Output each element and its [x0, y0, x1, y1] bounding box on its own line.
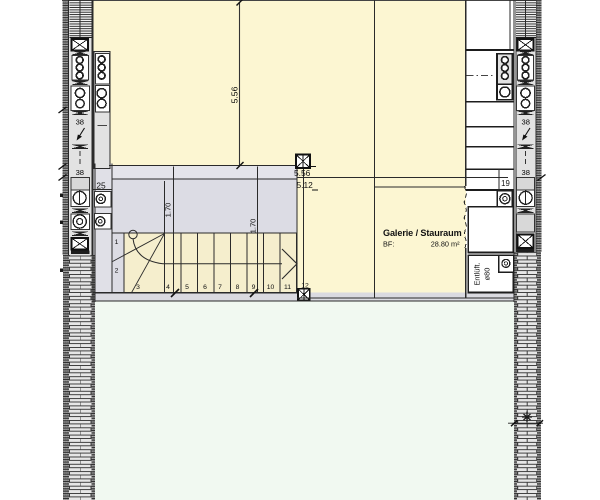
svg-text:38: 38 [521, 117, 529, 126]
svg-text:10: 10 [267, 284, 275, 291]
svg-text:1.70: 1.70 [249, 219, 258, 234]
svg-text:12: 12 [301, 283, 309, 290]
svg-text:8: 8 [236, 284, 240, 291]
svg-text:7: 7 [218, 284, 222, 291]
svg-text:28.80 m²: 28.80 m² [431, 240, 460, 249]
svg-text:BF:: BF: [383, 240, 394, 249]
svg-text:Galerie / Stauraum: Galerie / Stauraum [383, 228, 462, 238]
svg-text:Entlüft.: Entlüft. [473, 262, 482, 285]
svg-text:38: 38 [76, 117, 84, 126]
svg-text:38: 38 [521, 168, 529, 177]
svg-text:9: 9 [252, 284, 256, 291]
svg-text:11: 11 [284, 284, 291, 291]
svg-text:25: 25 [96, 181, 106, 191]
svg-text:5.56: 5.56 [294, 168, 311, 178]
svg-text:19: 19 [501, 179, 510, 188]
svg-text:ø80: ø80 [483, 268, 492, 281]
svg-text:2: 2 [115, 268, 119, 275]
svg-text:5.12: 5.12 [297, 180, 314, 190]
svg-text:38: 38 [76, 168, 84, 177]
svg-text:5: 5 [185, 284, 189, 291]
svg-text:1: 1 [115, 239, 119, 246]
svg-text:5.56: 5.56 [229, 86, 239, 103]
svg-text:1.70: 1.70 [164, 203, 173, 218]
svg-text:3: 3 [136, 284, 140, 291]
svg-text:6: 6 [203, 284, 207, 291]
svg-text:4: 4 [166, 284, 170, 291]
